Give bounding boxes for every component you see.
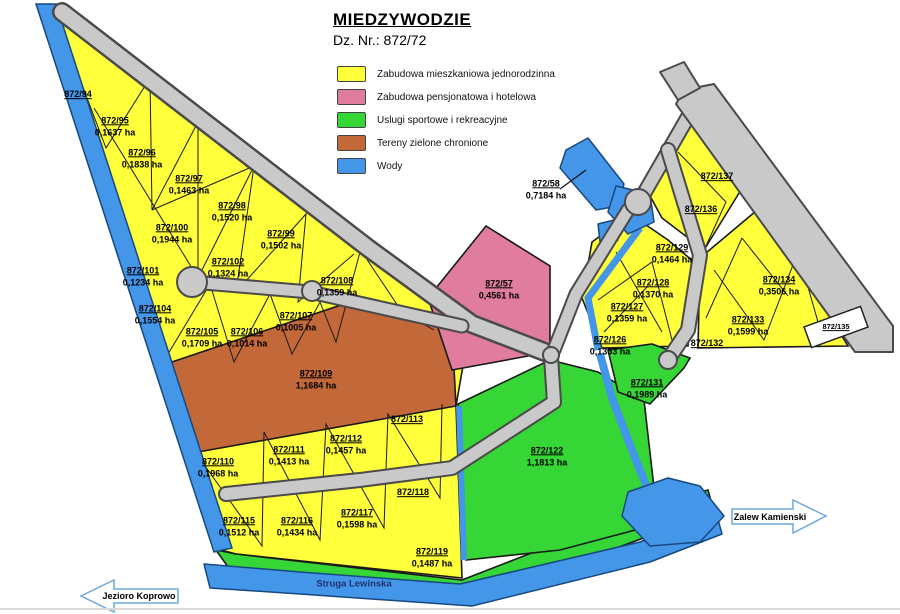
parcel-id: 872/116 [277, 515, 318, 527]
parcel-id: 872/133 [728, 314, 769, 326]
map-subtitle: Dz. Nr.: 872/72 [333, 32, 471, 48]
parcel-id: 872/122 [527, 445, 568, 457]
parcel-label-872-132: 872/132 [691, 338, 724, 350]
legend-label: Uslugi sportowe i rekreacyjne [377, 115, 508, 126]
legend-label: Wody [377, 161, 402, 172]
direction-arrow-east-label: Zalew Kamienski [731, 512, 827, 522]
parcel-id: 872/135 [822, 322, 849, 332]
legend-label: Zabudowa pensjonatowa i hotelowa [377, 92, 536, 103]
parcel-id: 872/109 [296, 368, 337, 380]
legend-swatch [337, 135, 366, 151]
parcel-label-872-127: 872/1270,1359 ha [607, 301, 648, 324]
direction-arrow-west-label: Jezioro Koprowo [80, 591, 180, 601]
parcel-label-872-122: 872/1221,1813 ha [527, 445, 568, 468]
parcel-area-value: 0,1234 ha [123, 277, 164, 289]
parcel-id: 872/134 [759, 274, 800, 286]
parcel-label-872-131: 872/1310,1989 ha [627, 377, 668, 400]
parcel-area-value: 0,1637 ha [95, 127, 136, 139]
parcel-label-872-58: 872/580,7184 ha [526, 178, 567, 201]
parcel-id: 872/107 [276, 310, 317, 322]
legend-swatch [337, 89, 366, 105]
parcel-label-872-129: 872/1290,1464 ha [652, 242, 693, 265]
parcel-label-872-119: 872/1190,1487 ha [412, 546, 453, 569]
legend-item-1: Zabudowa pensjonatowa i hotelowa [337, 89, 555, 105]
parcel-label-872-115: 872/1150,1512 ha [219, 515, 260, 538]
site-plan: 872/94872/950,1637 ha872/960,1838 ha872/… [0, 0, 900, 614]
parcel-label-872-136: 872/136 [685, 204, 718, 216]
parcel-area-value: 0,3506 ha [759, 286, 800, 298]
parcel-label-872-113: 872/113 [391, 414, 423, 426]
parcel-area-value: 0,4561 ha [479, 290, 520, 302]
parcel-area-value: 0,1989 ha [627, 389, 668, 401]
parcel-area-value: 1,1813 ha [527, 457, 568, 469]
legend-swatch [337, 158, 366, 174]
parcel-label-872-133: 872/1330,1599 ha [728, 314, 769, 337]
parcel-label-872-105: 872/1050,1709 ha [182, 326, 223, 349]
parcel-area-value: 0,1944 ha [152, 234, 193, 246]
parcel-id: 872/112 [326, 433, 367, 445]
parcel-id: 872/95 [95, 115, 136, 127]
parcel-area-value: 0,1359 ha [607, 313, 648, 325]
parcel-label-872-101: 872/1010,1234 ha [123, 265, 164, 288]
legend-item-3: Tereny zielone chronione [337, 135, 555, 151]
legend: Zabudowa mieszkaniowa jednorodzinnaZabud… [337, 66, 555, 181]
parcel-id: 872/57 [479, 278, 520, 290]
parcel-label-872-98: 872/980,1520 ha [212, 200, 253, 223]
parcel-id: 872/111 [269, 444, 310, 456]
parcel-id: 872/100 [152, 222, 193, 234]
parcel-id: 872/131 [627, 377, 668, 389]
parcel-area-value: 0,7184 ha [526, 190, 567, 202]
parcel-area-value: 0,1413 ha [269, 456, 310, 468]
legend-label: Zabudowa mieszkaniowa jednorodzinna [377, 69, 555, 80]
parcel-label-872-97: 872/970,1463 ha [169, 173, 210, 196]
parcel-area-value: 0,1005 ha [276, 322, 317, 334]
legend-label: Tereny zielone chronione [377, 138, 488, 149]
stream-label: Struga Lewinska [316, 579, 392, 590]
parcel-label-872-107: 872/1070,1005 ha [276, 310, 317, 333]
parcel-area-value: 0,1838 ha [122, 159, 163, 171]
parcel-id: 872/101 [123, 265, 164, 277]
legend-item-4: Wody [337, 158, 555, 174]
parcel-label-872-108: 872/1080,1359 ha [317, 275, 358, 298]
parcel-area-value: 0,1709 ha [182, 338, 223, 350]
parcel-id: 872/119 [412, 546, 453, 558]
parcel-label-872-109: 872/1091,1684 ha [296, 368, 337, 391]
parcel-id: 872/129 [652, 242, 693, 254]
parcel-label-872-116: 872/1160,1434 ha [277, 515, 318, 538]
parcel-area-value: 1,1684 ha [296, 380, 337, 392]
parcel-label-872-102: 872/1020,1324 ha [208, 256, 249, 279]
parcel-id: 872/96 [122, 147, 163, 159]
parcel-id: 872/115 [219, 515, 260, 527]
parcel-area-value: 0,1512 ha [219, 527, 260, 539]
parcel-label-872-112: 872/1120,1457 ha [326, 433, 367, 456]
parcel-area-value: 0,1359 ha [317, 287, 358, 299]
parcel-id: 872/106 [227, 326, 268, 338]
parcel-id: 872/94 [64, 89, 92, 101]
parcel-label-872-117: 872/1170,1598 ha [337, 507, 378, 530]
parcel-area-value: 0,1520 ha [212, 212, 253, 224]
direction-arrow-east: Zalew Kamienski [731, 499, 827, 534]
parcel-area-value: 0,1502 ha [261, 240, 302, 252]
parcel-id: 872/126 [590, 334, 631, 346]
parcel-label-872-95: 872/950,1637 ha [95, 115, 136, 138]
parcel-area-value: 0,1463 ha [169, 185, 210, 197]
parcel-id: 872/102 [208, 256, 249, 268]
parcel-label-872-100: 872/1000,1944 ha [152, 222, 193, 245]
parcel-id: 872/136 [685, 204, 718, 216]
map-title: MIEDZYWODZIE [333, 10, 471, 30]
parcel-id: 872/137 [701, 171, 734, 183]
parcel-area-value: 0,1598 ha [337, 519, 378, 531]
parcel-label-872-94: 872/94 [64, 89, 92, 101]
parcel-label-872-104: 872/1040,1554 ha [135, 303, 176, 326]
parcel-label-872-106: 872/1060,1014 ha [227, 326, 268, 349]
parcel-label-872-111: 872/1110,1413 ha [269, 444, 310, 467]
parcel-id: 872/127 [607, 301, 648, 313]
title-block: MIEDZYWODZIE Dz. Nr.: 872/72 [333, 10, 471, 48]
parcel-id: 872/118 [397, 487, 429, 499]
parcel-area-value: 0,1457 ha [326, 445, 367, 457]
parcel-id: 872/113 [391, 414, 423, 426]
parcel-id: 872/98 [212, 200, 253, 212]
parcel-label-872-134: 872/1340,3506 ha [759, 274, 800, 297]
parcel-area-value: 0,1599 ha [728, 326, 769, 338]
parcel-id: 872/132 [691, 338, 724, 350]
parcel-label-872-110: 872/1100,1968 ha [198, 456, 239, 479]
parcel-area-value: 0,1324 ha [208, 268, 249, 280]
parcel-label-872-137: 872/137 [701, 171, 734, 183]
parcel-id: 872/128 [633, 277, 674, 289]
parcel-label-872-135: 872/135 [822, 322, 849, 332]
parcel-id: 872/110 [198, 456, 239, 468]
parcel-area-value: 0,1434 ha [277, 527, 318, 539]
legend-swatch [337, 66, 366, 82]
page-edge-line [0, 608, 900, 610]
parcel-area-value: 0,1014 ha [227, 338, 268, 350]
parcel-id: 872/104 [135, 303, 176, 315]
parcel-area-value: 0,1370 ha [633, 289, 674, 301]
parcel-area-value: 0,1554 ha [135, 315, 176, 327]
parcel-area-value: 0,1464 ha [652, 254, 693, 266]
parcel-label-872-118: 872/118 [397, 487, 429, 499]
parcel-id: 872/117 [337, 507, 378, 519]
parcel-label-872-57: 872/570,4561 ha [479, 278, 520, 301]
parcel-area-value: 0,1353 ha [590, 346, 631, 358]
parcel-label-872-96: 872/960,1838 ha [122, 147, 163, 170]
legend-item-0: Zabudowa mieszkaniowa jednorodzinna [337, 66, 555, 82]
parcel-id: 872/105 [182, 326, 223, 338]
legend-item-2: Uslugi sportowe i rekreacyjne [337, 112, 555, 128]
parcel-label-872-128: 872/1280,1370 ha [633, 277, 674, 300]
parcel-area-value: 0,1487 ha [412, 558, 453, 570]
parcel-id: 872/99 [261, 228, 302, 240]
parcel-label-872-99: 872/990,1502 ha [261, 228, 302, 251]
parcel-id: 872/108 [317, 275, 358, 287]
parcel-id: 872/97 [169, 173, 210, 185]
parcel-label-872-126: 872/1260,1353 ha [590, 334, 631, 357]
legend-swatch [337, 112, 366, 128]
parcel-area-value: 0,1968 ha [198, 468, 239, 480]
